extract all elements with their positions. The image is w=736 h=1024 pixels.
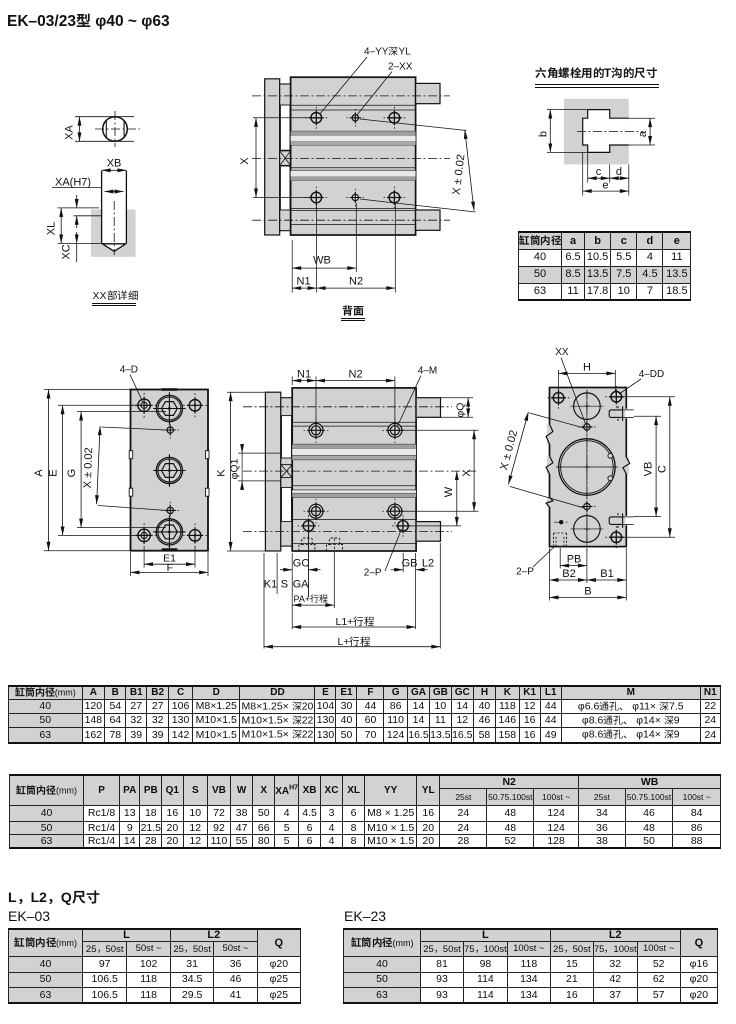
svg-text:4–M: 4–M [418, 366, 437, 377]
svg-text:φQ1: φQ1 [229, 458, 241, 479]
svg-text:W: W [443, 486, 455, 497]
svg-text:XL: XL [46, 222, 58, 235]
svg-text:K: K [216, 469, 228, 477]
svg-text:C: C [657, 465, 669, 473]
svg-text:X ± 0.02: X ± 0.02 [451, 154, 468, 196]
svg-text:X: X [239, 157, 251, 165]
svg-text:E: E [48, 469, 60, 476]
svg-text:N1: N1 [297, 276, 311, 288]
svg-text:e: e [602, 180, 608, 192]
svg-text:b: b [538, 131, 550, 137]
svg-text:X ± 0.02: X ± 0.02 [498, 429, 520, 472]
svg-text:WB: WB [313, 255, 331, 267]
svg-text:B2: B2 [562, 568, 575, 580]
svg-text:G: G [66, 469, 78, 478]
svg-text:N2: N2 [349, 276, 363, 288]
svg-text:2–P: 2–P [364, 568, 382, 579]
svg-text:φQ: φQ [455, 403, 467, 418]
svg-text:S: S [281, 579, 288, 591]
svg-text:F: F [167, 562, 173, 574]
svg-text:a: a [637, 130, 649, 137]
svg-text:VB: VB [643, 462, 655, 477]
svg-text:B: B [584, 585, 591, 597]
svg-text:2–XX: 2–XX [388, 62, 413, 73]
svg-text:X ± 0.02: X ± 0.02 [82, 447, 95, 488]
svg-text:4–DD: 4–DD [639, 369, 665, 380]
svg-text:GC: GC [293, 558, 310, 570]
svg-text:A: A [33, 469, 45, 477]
svg-text:XA: XA [64, 124, 76, 139]
svg-text:PB: PB [567, 554, 582, 566]
svg-text:K1: K1 [264, 579, 277, 591]
svg-text:B1: B1 [600, 568, 613, 580]
svg-text:4–D: 4–D [120, 365, 138, 376]
svg-text:2–P: 2–P [516, 567, 534, 578]
svg-text:N2: N2 [349, 369, 363, 381]
svg-text:XX: XX [555, 347, 569, 358]
svg-text:H: H [583, 362, 591, 374]
svg-text:XC: XC [61, 244, 73, 259]
svg-text:GB: GB [402, 558, 418, 570]
svg-text:XB: XB [107, 158, 122, 170]
svg-text:L2: L2 [422, 558, 434, 570]
svg-text:XA(H7): XA(H7) [55, 176, 91, 188]
svg-text:d: d [616, 166, 622, 178]
svg-text:c: c [596, 166, 602, 178]
svg-text:X: X [461, 469, 473, 477]
svg-text:GA: GA [293, 579, 310, 591]
svg-text:N1: N1 [297, 369, 311, 381]
